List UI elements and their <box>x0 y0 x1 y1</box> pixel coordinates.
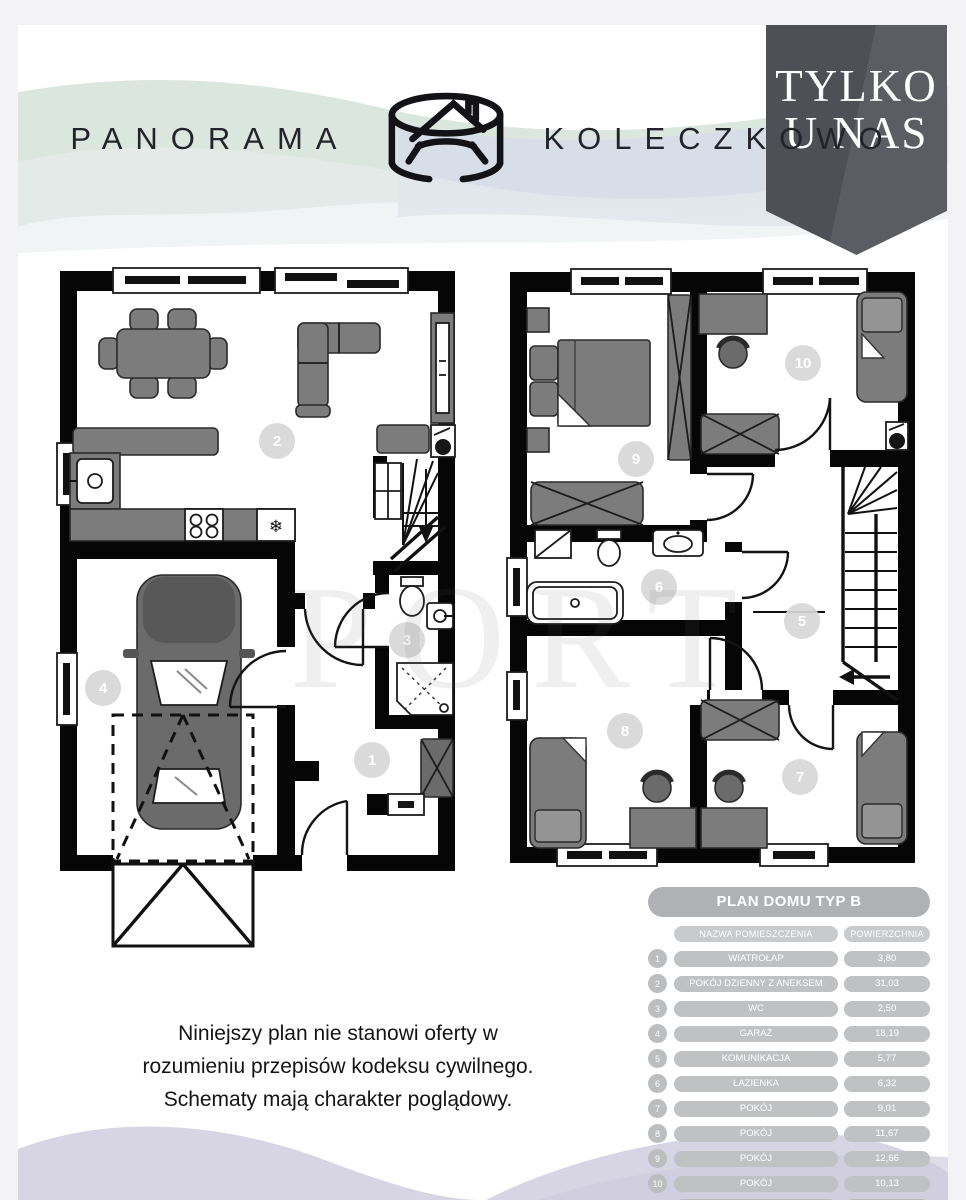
svg-text:7: 7 <box>796 769 804 786</box>
row-number-badge: 6 <box>648 1074 667 1093</box>
svg-text:3: 3 <box>403 632 411 649</box>
room-area-cell: 10,13 <box>844 1176 930 1192</box>
svg-text:6: 6 <box>655 579 663 596</box>
room-name-cell: POKÓJ <box>674 1176 838 1192</box>
upper-floor-plan: 9 10 6 5 8 7 <box>505 262 920 877</box>
row-number-badge: 5 <box>648 1049 667 1068</box>
svg-text:8: 8 <box>621 723 629 740</box>
room-name-cell: WIATROŁAP <box>674 951 838 967</box>
column-header-area: POWIERZCHNIA <box>844 926 930 942</box>
svg-text:10: 10 <box>795 355 812 372</box>
svg-text:9: 9 <box>632 451 640 468</box>
row-number-badge: 10 <box>648 1174 667 1193</box>
brand-name-right: KOLECZKOWO <box>543 121 895 157</box>
table-row: 8POKÓJ11,67 <box>648 1124 930 1143</box>
table-row: 1WIATROŁAP3,80 <box>648 949 930 968</box>
area-table: PLAN DOMU TYP B NAZWA POMIESZCZENIA POWI… <box>648 887 930 1200</box>
garage-car <box>123 575 255 829</box>
row-number-badge: 2 <box>648 974 667 993</box>
room-name-cell: KOMUNIKACJA <box>674 1051 838 1067</box>
hall-cabinets <box>377 313 455 457</box>
room-area-cell: 18,19 <box>844 1026 930 1042</box>
room-area-cell: 6,32 <box>844 1076 930 1092</box>
table-row: 5KOMUNIKACJA5,77 <box>648 1049 930 1068</box>
row-number-badge: 9 <box>648 1149 667 1168</box>
room-name-cell: GARAŻ <box>674 1026 838 1042</box>
svg-text:1: 1 <box>368 752 376 769</box>
ground-floor-plan: ❄ <box>55 263 465 988</box>
room-area-cell: 2,50 <box>844 1001 930 1017</box>
corner-sofa <box>296 323 380 417</box>
room-area-cell: 31,03 <box>844 976 930 992</box>
room-name-cell: POKÓJ <box>674 1101 838 1117</box>
table-row: 6ŁAZIENKA6,32 <box>648 1074 930 1093</box>
room-name-cell: POKÓJ <box>674 1151 838 1167</box>
svg-text:5: 5 <box>798 613 806 630</box>
row-number-badge: 1 <box>648 949 667 968</box>
table-row: 7POKÓJ9,01 <box>648 1099 930 1118</box>
room-name-cell: POKÓJ DZIENNY Z ANEKSEM <box>674 976 838 992</box>
staircase <box>375 459 445 571</box>
area-table-header: NAZWA POMIESZCZENIA POWIERZCHNIA <box>648 924 930 943</box>
bedroom8-furniture <box>530 738 696 848</box>
header-spacer <box>648 924 667 943</box>
room-name-cell: WC <box>674 1001 838 1017</box>
brand-logo: PANORAMA KOLECZKOWO <box>18 83 948 195</box>
row-number-badge: 4 <box>648 1024 667 1043</box>
doors <box>230 593 389 855</box>
dining-table-set <box>99 309 227 398</box>
table-row: 10POKÓJ10,13 <box>648 1174 930 1193</box>
disclaimer-line2: rozumieniu przepisów kodeksu cywilnego. <box>58 1050 618 1083</box>
svg-text:2: 2 <box>273 433 281 450</box>
room-name-cell: POKÓJ <box>674 1126 838 1142</box>
area-table-rows: 1WIATROŁAP3,802POKÓJ DZIENNY Z ANEKSEM31… <box>648 949 930 1193</box>
svg-text:4: 4 <box>99 680 108 697</box>
driveway <box>113 864 253 946</box>
bedroom9-furniture <box>527 295 691 525</box>
disclaimer-line1: Niniejszy plan nie stanowi oferty w <box>58 1017 618 1050</box>
area-table-title: PLAN DOMU TYP B <box>648 887 930 917</box>
row-number-badge: 7 <box>648 1099 667 1118</box>
table-row: 9POKÓJ12,66 <box>648 1149 930 1168</box>
room-area-cell: 11,67 <box>844 1126 930 1142</box>
room-name-cell: ŁAZIENKA <box>674 1076 838 1092</box>
fridge-icon: ❄ <box>269 517 283 537</box>
house-circle-logo-icon <box>371 83 521 195</box>
table-row: 3WC2,50 <box>648 999 930 1018</box>
room-area-cell: 9,01 <box>844 1101 930 1117</box>
table-row: 2POKÓJ DZIENNY Z ANEKSEM31,03 <box>648 974 930 993</box>
room-area-cell: 3,80 <box>844 951 930 967</box>
room-area-cell: 12,66 <box>844 1151 930 1167</box>
disclaimer-line3: Schematy mają charakter poglądowy. <box>58 1083 618 1116</box>
staircase <box>839 467 897 700</box>
row-number-badge: 3 <box>648 999 667 1018</box>
table-row: 4GARAŻ18,19 <box>648 1024 930 1043</box>
poster-card: PANORAMA KOLECZKOWO TYLKO U NAS <box>18 25 948 1200</box>
row-number-badge: 8 <box>648 1124 667 1143</box>
brand-name-left: PANORAMA <box>70 121 349 157</box>
column-header-name: NAZWA POMIESZCZENIA <box>674 926 838 942</box>
room-area-cell: 5,77 <box>844 1051 930 1067</box>
legal-disclaimer: Niniejszy plan nie stanowi oferty w rozu… <box>58 1017 618 1116</box>
